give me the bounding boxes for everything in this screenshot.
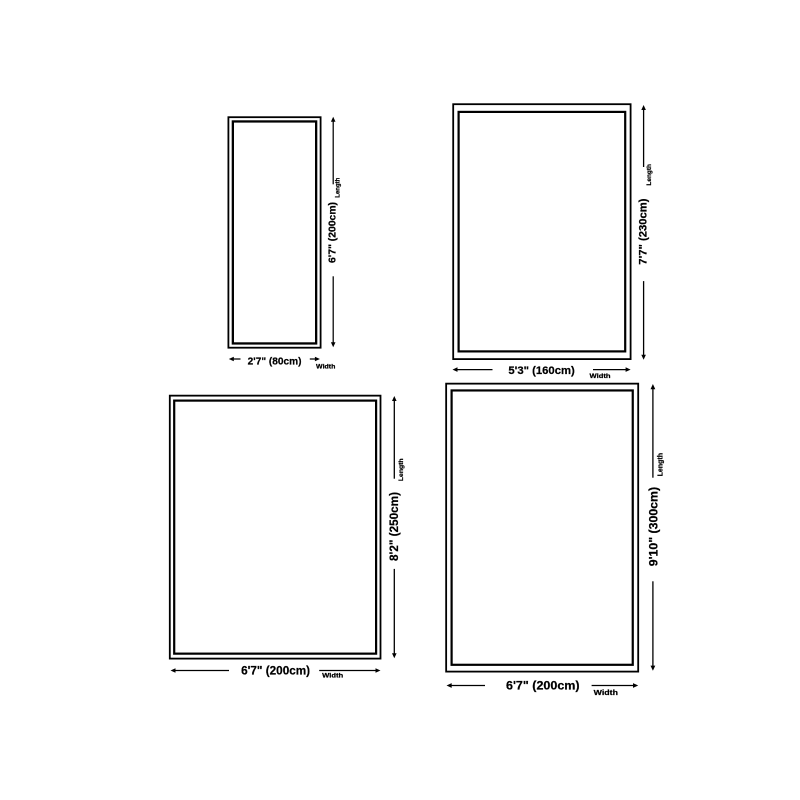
- svg-text:Width: Width: [590, 373, 611, 380]
- svg-text:6'7" (200cm): 6'7" (200cm): [241, 665, 310, 678]
- svg-text:Width: Width: [322, 672, 343, 679]
- svg-text:Length: Length: [398, 459, 405, 482]
- svg-text:Length: Length: [646, 164, 653, 186]
- svg-text:Length: Length: [336, 177, 342, 197]
- svg-text:Width: Width: [316, 364, 336, 370]
- svg-text:6'7" (200cm): 6'7" (200cm): [327, 202, 338, 263]
- svg-text:5'3" (160cm): 5'3" (160cm): [508, 365, 575, 377]
- svg-text:9'10" (300cm): 9'10" (300cm): [647, 487, 661, 566]
- svg-text:6'7" (200cm): 6'7" (200cm): [506, 678, 580, 692]
- svg-text:8'2" (250cm): 8'2" (250cm): [388, 492, 401, 561]
- svg-text:7'7" (230cm): 7'7" (230cm): [638, 198, 650, 264]
- svg-text:2'7" (80cm): 2'7" (80cm): [248, 356, 302, 367]
- svg-text:Length: Length: [658, 453, 665, 476]
- svg-text:Width: Width: [594, 690, 618, 697]
